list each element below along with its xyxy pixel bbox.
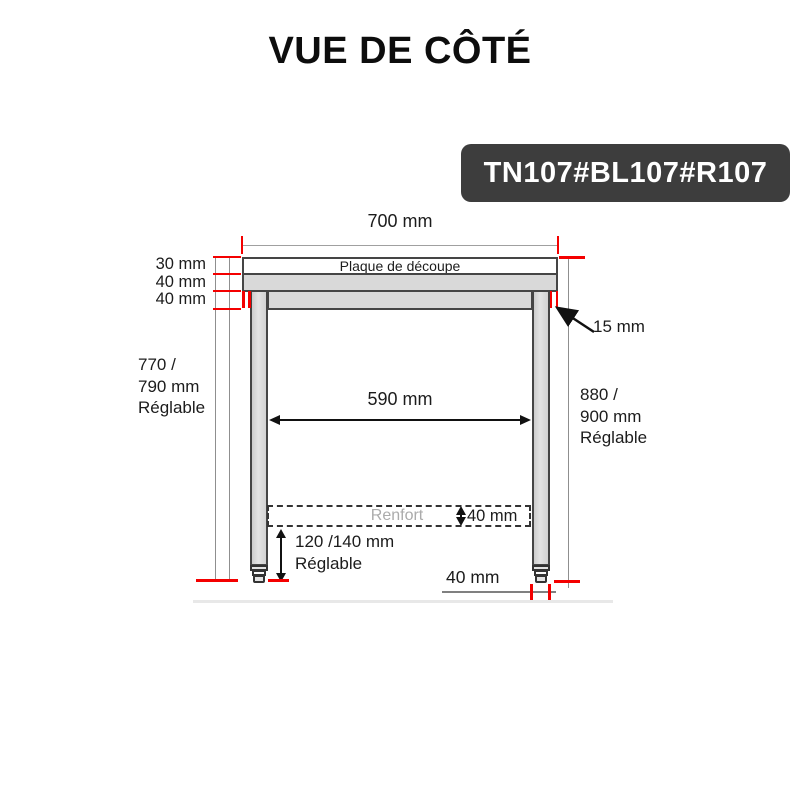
arrow-head-right: [520, 415, 531, 425]
dim-590-arrow: [269, 415, 531, 425]
left-tick-apron-bottom: [213, 308, 241, 311]
left-leg: [250, 290, 268, 566]
brace-height-label: 40 mm: [467, 505, 517, 527]
left-setback-tick-inner: [248, 291, 251, 308]
dim-700-tick-left: [241, 236, 244, 254]
foot-adjust-arrow: [276, 529, 286, 582]
foot-width-tick-left: [530, 584, 533, 601]
foot-adjust-label: 120 /140 mm Réglable: [295, 531, 394, 574]
foot-width-line: [442, 591, 556, 593]
left-tick-plate-bottom: [213, 273, 241, 276]
left-height-line1: 770 /: [138, 354, 205, 376]
foot-width-label: 40 mm: [446, 567, 499, 589]
brace-label: Renfort: [347, 505, 447, 527]
left-setback-tick-outer: [242, 291, 245, 308]
right-leg: [532, 290, 550, 566]
left-height-label: 770 / 790 mm Réglable: [138, 354, 205, 419]
arrow-shaft: [280, 536, 282, 575]
right-height-line1: 880 /: [580, 384, 647, 406]
ground-line: [193, 600, 613, 603]
foot-adjust-line2: Réglable: [295, 553, 394, 575]
left-height-line3: Réglable: [138, 397, 205, 419]
left-extension-line-outer: [215, 256, 216, 582]
dim-700-line: [243, 245, 557, 246]
technical-drawing: 700 mm Plaque de découpe 30 mm 40 mm 40 …: [0, 0, 800, 800]
side-view-diagram: VUE DE CÔTÉ TN107#BL107#R107 700 mm Plaq…: [0, 0, 800, 800]
apron-rail: [267, 290, 533, 310]
dim-590-label: 590 mm: [340, 389, 460, 411]
arrow-shaft: [277, 419, 523, 421]
right-height-label: 880 / 900 mm Réglable: [580, 384, 647, 449]
dim-40-apron-label: 40 mm: [118, 289, 206, 311]
dim-700-tick-right: [557, 236, 560, 254]
right-foot-pad: [535, 575, 547, 583]
right-tick-bottom: [554, 580, 580, 583]
dim-700-label: 700 mm: [340, 211, 460, 233]
right-tick-top: [559, 256, 585, 259]
left-height-line2: 790 mm: [138, 376, 205, 398]
right-height-line2: 900 mm: [580, 406, 647, 428]
ground-tick-left-outer: [196, 579, 238, 582]
right-height-line3: Réglable: [580, 427, 647, 449]
arrow-head-bottom: [456, 517, 466, 526]
left-tick-worktop-bottom: [213, 290, 241, 293]
left-tick-top: [213, 256, 241, 259]
foot-adjust-line1: 120 /140 mm: [295, 531, 394, 553]
ground-tick-left-inner: [268, 579, 289, 582]
dim-15-arrow: [550, 302, 598, 336]
left-foot-pad: [253, 575, 265, 583]
foot-width-tick-right: [548, 584, 551, 601]
dim-15-label: 15 mm: [593, 316, 645, 338]
cutting-plate-label: Plaque de découpe: [340, 259, 461, 273]
left-extension-line-inner: [229, 256, 230, 582]
brace-height-arrow: [456, 506, 466, 526]
